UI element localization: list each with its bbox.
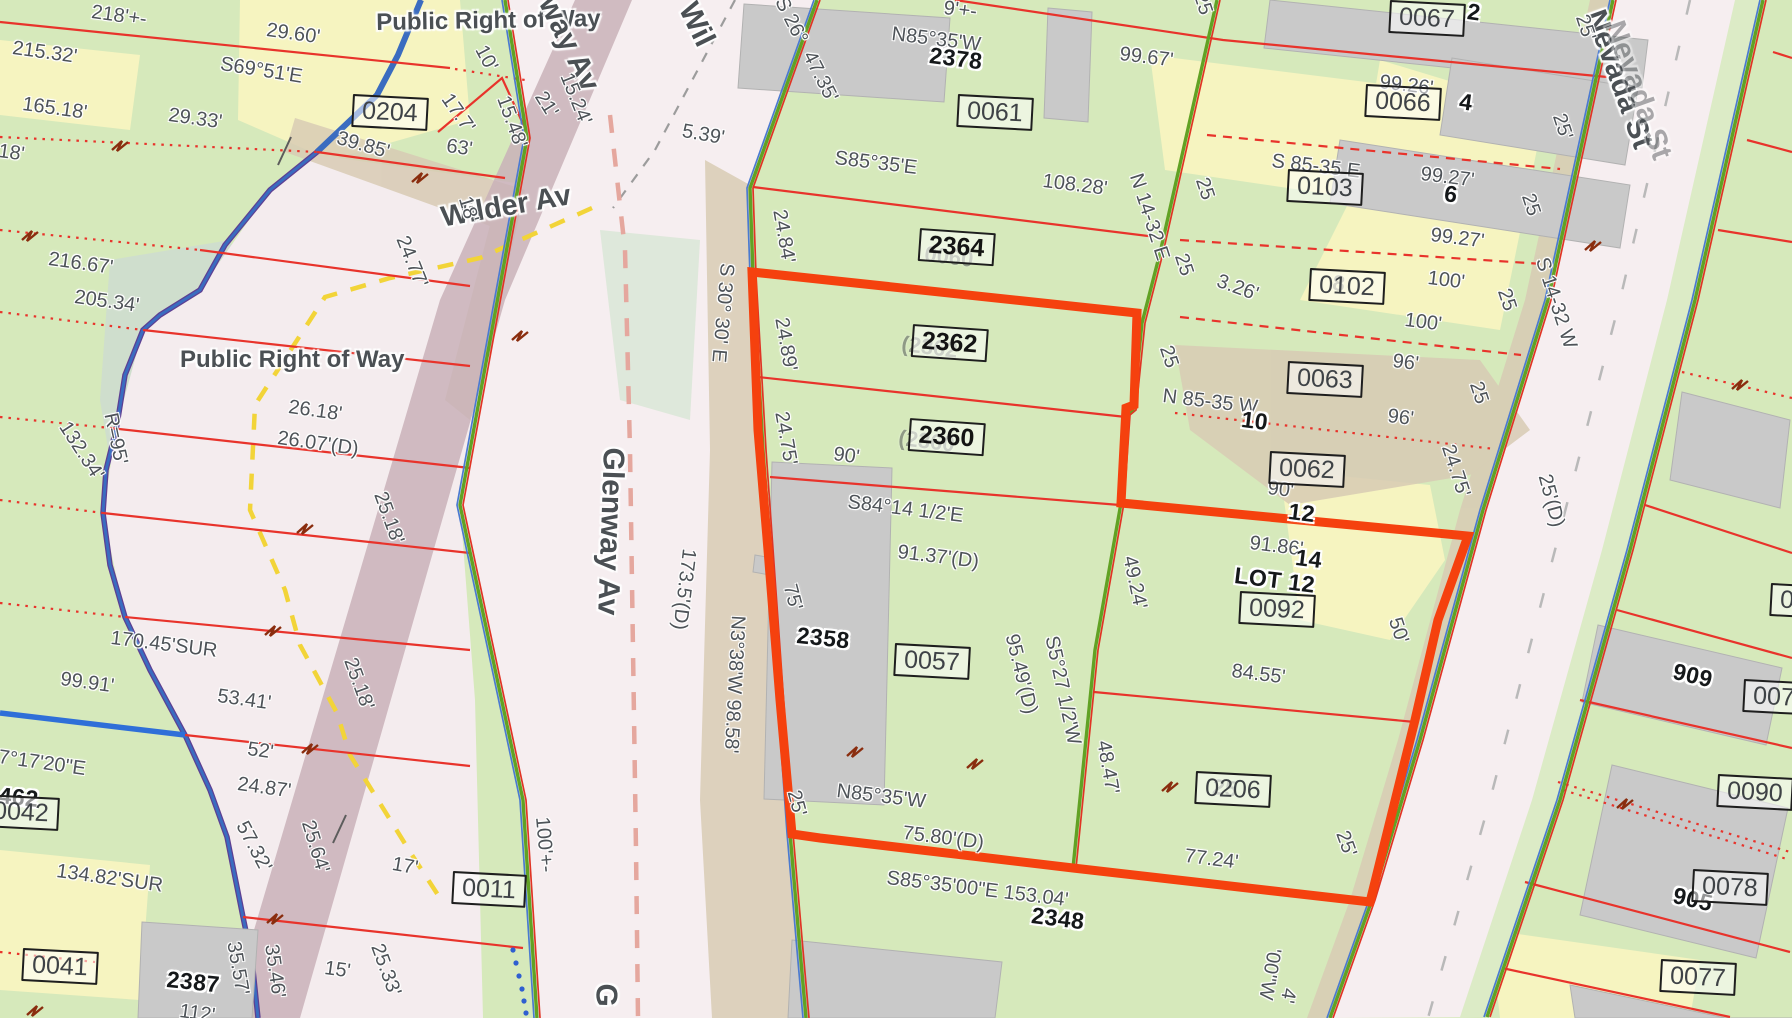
dimension-label: 165.18' (21, 94, 88, 123)
house-number-label: 6 (1443, 182, 1459, 207)
dimension-label: 96' (1387, 406, 1415, 429)
dimension-label: 24.87' (236, 774, 292, 801)
parcel-id-box: 0041 (21, 948, 98, 985)
dimension-label: S 26° (771, 0, 811, 47)
house-number-label: 909 (1671, 660, 1715, 691)
dimension-label: 15' (323, 958, 352, 981)
dimension-label: 25 (1156, 343, 1182, 370)
parcel-id-box: 2360 (908, 418, 986, 456)
dimension-label: S69°51'E (219, 54, 304, 87)
dimension-label: 15.48' (493, 93, 530, 150)
dimension-label: 25'(D) (1535, 472, 1568, 529)
parcel-id-box: 0057 (893, 643, 970, 680)
dimension-label: 25' (784, 788, 810, 818)
dimension-label: N 14-32 E (1126, 171, 1173, 263)
dimension-label: 53.41' (216, 686, 272, 713)
dimension-label: 35.46' (261, 943, 288, 999)
dimension-label: 90' (832, 444, 861, 467)
parcel-id-box: 0206 (1194, 771, 1271, 808)
parcel-id-box: 0066 (1364, 84, 1441, 121)
dimension-label: 26.07'(D) (276, 428, 360, 459)
street-name-label: Glenway Av (592, 447, 628, 616)
dimension-label: 99.67' (1119, 44, 1175, 70)
map-viewport[interactable]: Public Right of WayPublic Right of WayWi… (0, 0, 1792, 1018)
dimension-label: 100' (1404, 310, 1443, 334)
dimension-label: 25.33' (367, 941, 404, 998)
parcel-id-box: 2364 (918, 228, 996, 266)
parcel-id-box: 0077 (1659, 959, 1736, 996)
house-number-label: 12 (1287, 500, 1316, 526)
dimension-label: 77.24' (1184, 846, 1240, 872)
dimension-label: 25 (1466, 379, 1492, 406)
dimension-label: 5.39' (681, 121, 727, 148)
house-number-label: 2358 (796, 624, 851, 652)
dimension-label: 17' (391, 854, 420, 878)
parcel-id-box: 0204 (351, 94, 428, 131)
dimension-label: S84°14 1/2'E (847, 492, 965, 526)
dimension-label: S85°35'E (834, 148, 919, 178)
dimension-label: R=95' (100, 411, 130, 466)
dimension-label: 4' (1277, 987, 1299, 1005)
dimension-label: 95.49'(D) (1002, 632, 1041, 716)
dimension-label: 25 (1518, 191, 1544, 218)
parcel-id-box: 0063 (1286, 361, 1363, 398)
dimension-label: N3°38'W 98.58' (721, 615, 748, 754)
dimension-label: S 14-32 W (1532, 255, 1580, 351)
dimension-label: 25.18' (370, 489, 407, 546)
map-labels-layer: Public Right of WayPublic Right of WayWi… (0, 0, 1792, 1018)
parcel-id-box: 0102 (1308, 268, 1385, 305)
parcel-id-box: 0078 (1691, 869, 1768, 906)
dimension-label: 218'+- (90, 2, 148, 30)
house-number-label: 4 (1458, 90, 1474, 115)
dimension-label: 96' (1392, 351, 1420, 374)
street-name-label: Wil (673, 0, 720, 51)
parcel-id-box: 0090 (1716, 774, 1792, 811)
dimension-label: 47.35' (799, 48, 841, 105)
dimension-label: 108.28' (1042, 171, 1109, 199)
dimension-label: 24.75' (771, 410, 800, 467)
house-number-label: 2378 (928, 44, 984, 73)
dimension-label: 24.77' (392, 233, 431, 290)
dimension-label: 100' (1427, 268, 1466, 292)
dimension-label: 24.84' (769, 208, 798, 265)
parcel-id-box: 0067 (1388, 0, 1465, 37)
dimension-label: 216.67' (47, 249, 114, 278)
dimension-label: 99.27' (1430, 225, 1486, 251)
dimension-label: 91.37'(D) (897, 542, 980, 572)
dimension-label: 9'+- (943, 0, 978, 22)
dimension-label: 25.18' (340, 655, 377, 712)
dimension-label: 134.82'SUR (55, 861, 164, 896)
street-name-label: Public Right of Way (180, 348, 404, 372)
dimension-label: 10' (471, 42, 501, 74)
parcel-id-box: 0 (1769, 583, 1792, 618)
dimension-label: N85°35'W (836, 781, 927, 812)
dimension-label: 25.64' (298, 818, 333, 875)
dimension-label: S5°27 1/2'W (1041, 634, 1084, 747)
dimension-label: S 30° 30' E (708, 262, 737, 363)
parcel-id-box: 007 (1742, 679, 1792, 715)
dimension-label: 170.45'SUR (110, 628, 219, 661)
street-name-label: G (590, 983, 621, 1007)
dimension-label: 18' (0, 141, 26, 164)
house-number-label: 2348 (1030, 904, 1086, 933)
house-number-label: 14 (1294, 546, 1323, 572)
dimension-label: 29.33' (167, 105, 223, 132)
dimension-label: 75.80'(D) (902, 823, 985, 853)
dimension-label: 25' (1332, 828, 1360, 859)
dimension-label: 215.32' (11, 38, 78, 67)
dimension-label: 21' (531, 88, 562, 121)
dimension-label: 48.47' (1093, 739, 1122, 796)
parcel-id-box: 0103 (1286, 169, 1363, 206)
parcel-id-box: 0061 (956, 94, 1033, 131)
house-number-label: 2 (1466, 0, 1482, 25)
dimension-label: 25 (1494, 286, 1520, 313)
house-number-label: 10 (1240, 408, 1269, 434)
dimension-label: 100'+- (532, 816, 557, 873)
dimension-label: 205.34' (73, 287, 140, 316)
house-number-label: 2387 (166, 968, 221, 996)
dimension-label: 39.85' (334, 128, 391, 162)
parcel-id-box: 0092 (1238, 591, 1315, 628)
dimension-label: 24.89' (771, 316, 800, 373)
dimension-label: 49.24' (1119, 554, 1150, 611)
dimension-label: 52' (246, 739, 275, 762)
dimension-label: 57.32' (232, 818, 275, 875)
dimension-label: 26.18' (287, 397, 343, 424)
dimension-label: 3.26' (1214, 271, 1261, 304)
dimension-label: 29.60' (265, 20, 321, 47)
dimension-label: 35.57' (223, 940, 252, 997)
dimension-label: 25 (1171, 251, 1197, 278)
parcel-id-box: 0062 (1268, 451, 1345, 488)
dimension-label: 25 (1192, 175, 1218, 202)
dimension-label: 173.5'(D) (669, 548, 699, 631)
dimension-label: 99.91' (59, 669, 115, 696)
dimension-label: 17.7' (438, 90, 479, 136)
parcel-id-box: 0011 (451, 871, 526, 908)
dimension-label: 7°17'20"E (0, 747, 87, 779)
dimension-label: 84.55' (1231, 661, 1287, 687)
dimension-label: 25 (1190, 0, 1216, 17)
dimension-label: 63' (445, 136, 474, 159)
dimension-label: 25' (1549, 111, 1576, 142)
parcel-id-box: 0042 (0, 794, 60, 831)
dimension-label: 24.75' (1438, 442, 1474, 499)
dimension-label: 132.34' (55, 418, 107, 483)
dimension-label: 75' (780, 582, 806, 612)
dimension-label: 112' (178, 1001, 216, 1018)
dimension-label: 50' (1385, 615, 1412, 646)
parcel-id-box: 2362 (911, 324, 989, 362)
